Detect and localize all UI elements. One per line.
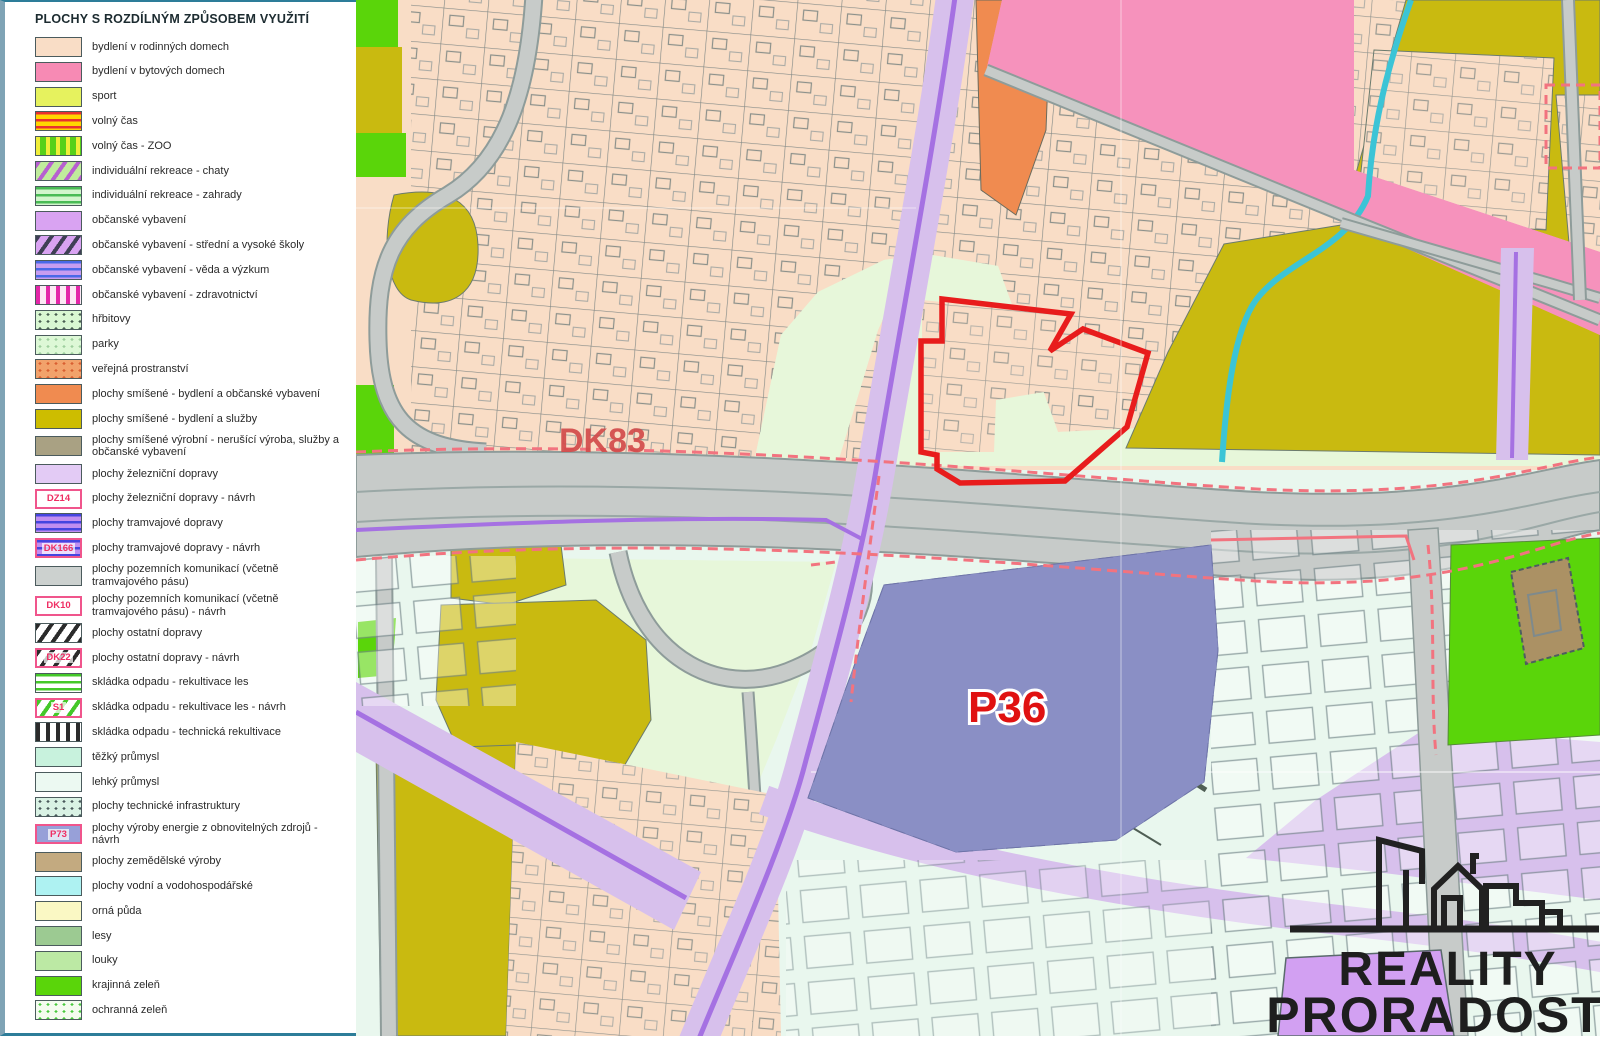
legend-item: skládka odpadu - rekultivace les [35,673,350,693]
legend-item: plochy tramvajové dopravy [35,513,350,533]
legend-item: DK10plochy pozemních komunikací (včetně … [35,593,350,618]
legend-item: DK22plochy ostatní dopravy - návrh [35,648,350,668]
legend-swatch [35,951,82,971]
legend-swatch: DK22 [35,648,82,668]
legend-swatch [35,310,82,330]
legend-item-label: bydlení v rodinných domech [92,41,229,54]
legend-swatch [35,797,82,817]
legend-item-label: plochy vodní a vodohospodářské [92,880,253,893]
legend-swatch-badge: P73 [48,829,69,840]
legend-item: louky [35,951,350,971]
legend-item: DZ14plochy železniční dopravy - návrh [35,489,350,509]
legend-item-label: plochy zemědělské výroby [92,855,221,868]
legend-swatch [35,335,82,355]
legend-swatch: S1 [35,698,82,718]
legend-item: DK166plochy tramvajové dopravy - návrh [35,538,350,558]
legend-item-label: individuální rekreace - zahrady [92,189,242,202]
legend-item: plochy smíšené - bydlení a služby [35,409,350,429]
legend-item: skládka odpadu - technická rekultivace [35,722,350,742]
legend-swatch [35,876,82,896]
zoning-map: DK83 P36 REALITY PRORADOST [356,0,1600,1036]
page: { "legend": { "title": "PLOCHY S ROZDÍLN… [0,0,1600,1036]
legend-swatch [35,436,82,456]
legend-item-label: plochy pozemních komunikací (včetně tram… [92,593,344,618]
legend-item-label: plochy technické infrastruktury [92,800,240,813]
legend-swatch [35,161,82,181]
legend-item: plochy ostatní dopravy [35,623,350,643]
legend-item: P73plochy výroby energie z obnovitelných… [35,822,350,847]
legend-item-label: občanské vybavení - zdravotnictví [92,289,258,302]
legend-item-label: plochy ostatní dopravy [92,627,202,640]
legend-item: plochy železniční dopravy [35,464,350,484]
logo-line2: PRORADOST [1266,987,1600,1036]
legend-title: PLOCHY S ROZDÍLNÝM ZPŮSOBEM VYUŽITÍ [35,12,350,26]
legend-item-label: volný čas - ZOO [92,140,171,153]
legend-item-label: sport [92,90,116,103]
legend-swatch [35,566,82,586]
legend-item-label: skládka odpadu - rekultivace les [92,676,249,689]
p36-label: P36 [968,683,1046,732]
legend-swatch [35,623,82,643]
legend-item: lehký průmysl [35,772,350,792]
legend-item-label: orná půda [92,905,142,918]
legend-item: hřbitovy [35,310,350,330]
legend-item: plochy zemědělské výroby [35,852,350,872]
legend-swatch: DZ14 [35,489,82,509]
legend-item: plochy smíšené - bydlení a občanské vyba… [35,384,350,404]
legend-item-label: plochy ostatní dopravy - návrh [92,652,239,665]
legend-swatch [35,722,82,742]
legend-swatch [35,464,82,484]
legend-item-label: hřbitovy [92,313,131,326]
legend-swatch [35,409,82,429]
legend-swatch [35,211,82,231]
legend-swatch-badge: DK166 [42,543,76,554]
legend-swatch [35,926,82,946]
legend-swatch [35,111,82,131]
legend-item: parky [35,335,350,355]
legend-swatch [35,359,82,379]
legend-swatch [35,976,82,996]
legend-item-label: volný čas [92,115,138,128]
legend-item: občanské vybavení - zdravotnictví [35,285,350,305]
legend-swatch [35,673,82,693]
legend-list: bydlení v rodinných domechbydlení v byto… [35,37,350,1020]
legend-item-label: plochy tramvajové dopravy [92,517,223,530]
legend-item-label: bydlení v bytových domech [92,65,225,78]
legend-item: občanské vybavení - střední a vysoké ško… [35,235,350,255]
legend-item: krajinná zeleň [35,976,350,996]
landscape-green-patch [356,0,398,47]
legend-swatch [35,747,82,767]
dk83-label: DK83 [559,422,646,460]
map-canvas: DK83 P36 REALITY PRORADOST [356,0,1600,1036]
legend-swatch-badge: DK22 [44,652,72,663]
legend-item-label: plochy pozemních komunikací (včetně tram… [92,563,344,588]
legend-item: individuální rekreace - chaty [35,161,350,181]
legend-item: plochy technické infrastruktury [35,797,350,817]
legend-item: občanské vybavení [35,211,350,231]
legend-swatch [35,285,82,305]
legend-item-label: skládka odpadu - rekultivace les - návrh [92,701,286,714]
legend-item: občanské vybavení - věda a výzkum [35,260,350,280]
legend-swatch: P73 [35,824,82,844]
legend-swatch [35,62,82,82]
legend-item: individuální rekreace - zahrady [35,186,350,206]
legend-item-label: plochy smíšené - bydlení a občanské vyba… [92,388,320,401]
legend-item: těžký průmysl [35,747,350,767]
legend-item: veřejná prostranství [35,359,350,379]
legend-swatch [35,384,82,404]
legend-item: bydlení v bytových domech [35,62,350,82]
legend-swatch [35,37,82,57]
legend-swatch [35,772,82,792]
legend-panel: PLOCHY S ROZDÍLNÝM ZPŮSOBEM VYUŽITÍ bydl… [0,0,356,1036]
legend-item-label: občanské vybavení - střední a vysoké ško… [92,239,304,252]
legend-item: lesy [35,926,350,946]
legend-item-label: louky [92,954,118,967]
zoning-map-graphics: DK83 P36 REALITY PRORADOST [356,0,1600,1036]
legend-item-label: plochy tramvajové dopravy - návrh [92,542,260,555]
legend-swatch [35,186,82,206]
legend-item-label: plochy železniční dopravy [92,468,218,481]
legend-item-label: lehký průmysl [92,776,159,789]
legend-item: volný čas - ZOO [35,136,350,156]
legend-item-label: skládka odpadu - technická rekultivace [92,726,281,739]
legend-item: plochy smíšené výrobní - nerušící výroba… [35,434,350,459]
legend-item-label: plochy smíšené - bydlení a služby [92,413,257,426]
legend-item: sport [35,87,350,107]
legend-swatch [35,852,82,872]
legend-swatch-badge: DK10 [44,600,72,611]
legend-swatch [35,260,82,280]
legend-item-label: plochy smíšené výrobní - nerušící výroba… [92,434,344,459]
legend-item-label: těžký průmysl [92,751,159,764]
legend-item: plochy vodní a vodohospodářské [35,876,350,896]
legend-item-label: občanské vybavení - věda a výzkum [92,264,269,277]
legend-item-label: lesy [92,930,112,943]
legend-item-label: občanské vybavení [92,214,186,227]
legend-swatch [35,136,82,156]
legend-item-label: veřejná prostranství [92,363,189,376]
legend-swatch-badge: S1 [51,702,67,713]
legend-swatch [35,1000,82,1020]
legend-swatch [35,901,82,921]
legend-item: volný čas [35,111,350,131]
legend-item-label: individuální rekreace - chaty [92,165,229,178]
legend-item: plochy pozemních komunikací (včetně tram… [35,563,350,588]
legend-item: orná půda [35,901,350,921]
legend-item: ochranná zeleň [35,1000,350,1020]
legend-item-label: plochy výroby energie z obnovitelných zd… [92,822,344,847]
legend-item-label: krajinná zeleň [92,979,160,992]
legend-swatch: DK166 [35,538,82,558]
legend-swatch [35,235,82,255]
legend-item: bydlení v rodinných domech [35,37,350,57]
legend-swatch [35,513,82,533]
legend-item-label: parky [92,338,119,351]
legend-item-label: ochranná zeleň [92,1004,167,1017]
legend-swatch [35,87,82,107]
legend-swatch: DK10 [35,596,82,616]
legend-item: S1skládka odpadu - rekultivace les - náv… [35,698,350,718]
legend-swatch-badge: DZ14 [45,493,72,504]
legend-item-label: plochy železniční dopravy - návrh [92,492,255,505]
